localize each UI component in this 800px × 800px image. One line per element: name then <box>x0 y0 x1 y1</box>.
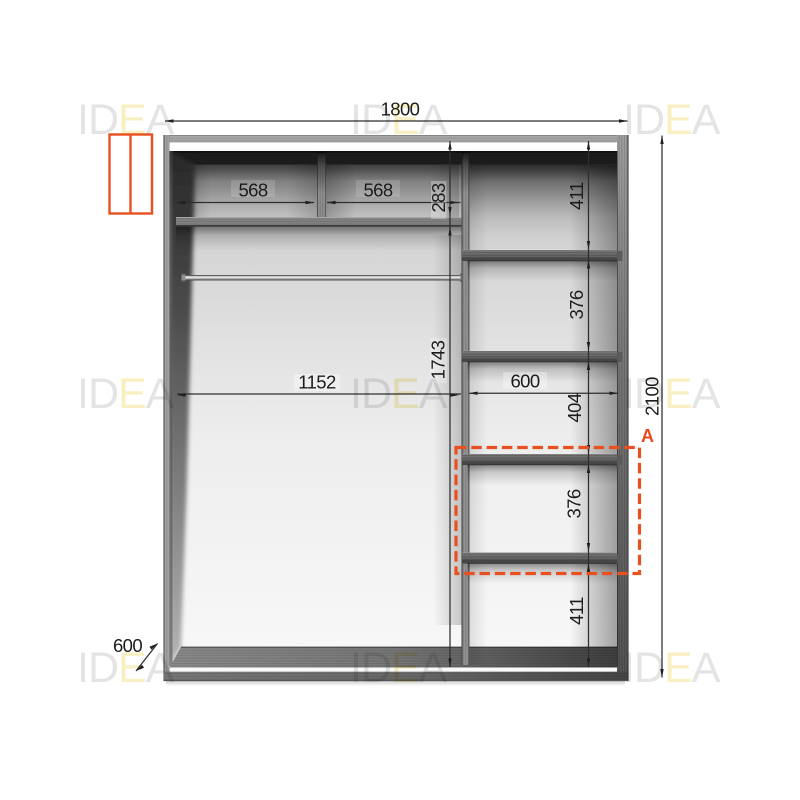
svg-text:IDEA: IDEA <box>623 370 721 418</box>
svg-text:568: 568 <box>238 180 267 201</box>
svg-text:376: 376 <box>566 290 587 319</box>
svg-text:411: 411 <box>566 597 587 625</box>
svg-text:404: 404 <box>564 393 585 422</box>
svg-text:IDEA: IDEA <box>77 370 175 418</box>
svg-text:411: 411 <box>566 182 587 210</box>
svg-text:376: 376 <box>564 489 585 518</box>
svg-text:IDEA: IDEA <box>350 370 448 418</box>
svg-text:IDEA: IDEA <box>77 96 175 144</box>
svg-text:IDEA: IDEA <box>350 644 448 692</box>
svg-text:283: 283 <box>428 183 449 212</box>
svg-text:IDEA: IDEA <box>623 96 721 144</box>
svg-text:A: A <box>641 426 654 446</box>
svg-text:IDEA: IDEA <box>350 96 448 144</box>
svg-text:IDEA: IDEA <box>623 644 721 692</box>
svg-text:568: 568 <box>363 180 392 201</box>
svg-text:1152: 1152 <box>298 372 336 393</box>
svg-text:IDEA: IDEA <box>77 644 175 692</box>
svg-text:600: 600 <box>510 371 539 392</box>
